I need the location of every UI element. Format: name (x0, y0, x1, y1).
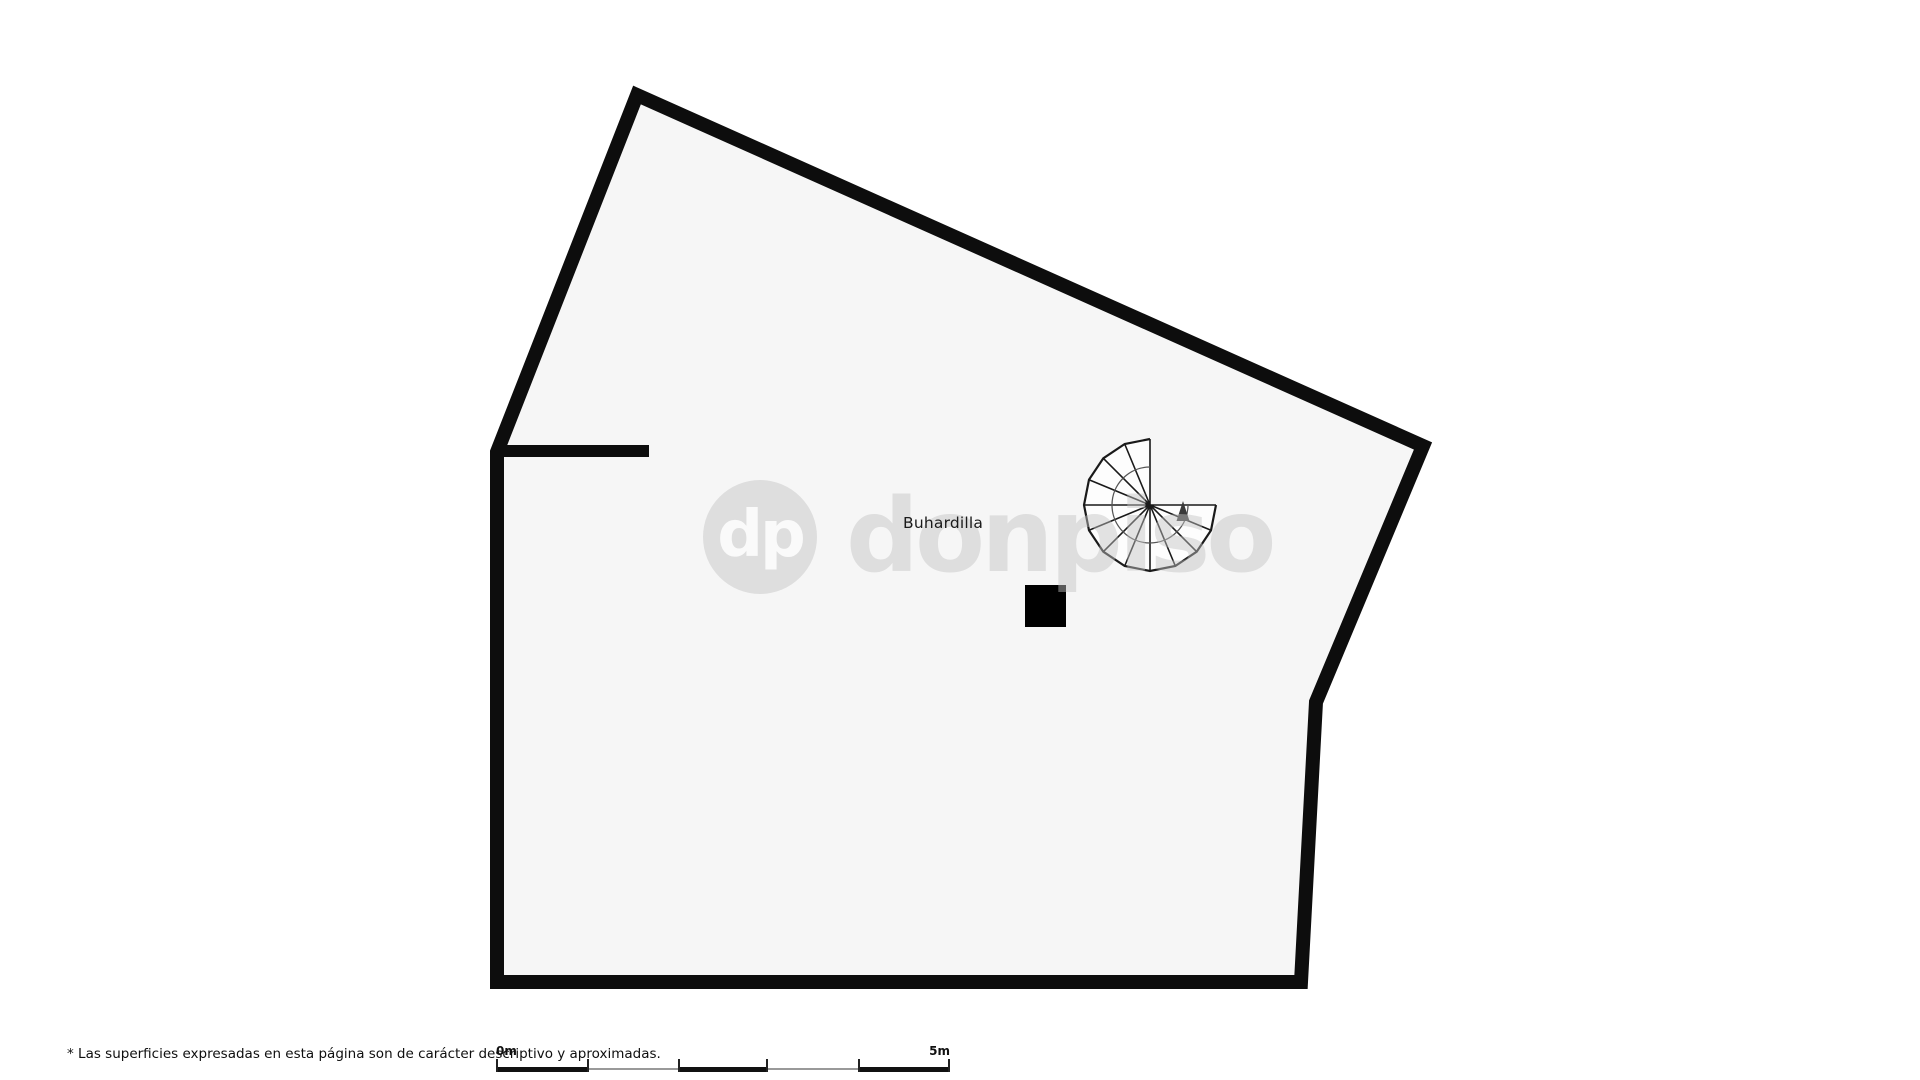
scale-tick (496, 1059, 498, 1072)
scale-segment (859, 1067, 950, 1072)
scale-label-5m: 5m (929, 1045, 950, 1057)
scale-tick (948, 1059, 950, 1072)
scale-segment (496, 1067, 588, 1072)
scale-segment (767, 1068, 859, 1070)
scale-tick (766, 1059, 768, 1072)
room-label: Buhardilla (903, 514, 983, 532)
scale-label-0m: 0m (496, 1045, 517, 1057)
scale-segment (588, 1068, 679, 1070)
scale-tick (587, 1059, 589, 1072)
floorplan-drawing (0, 0, 1920, 1080)
attic-outline (497, 95, 1423, 982)
scale-bar: 0m 5m (496, 1045, 950, 1073)
floorplan-page: dp donpiso Buhardilla * Las superficies … (0, 0, 1920, 1080)
chimney-column (1025, 585, 1066, 627)
scale-tick (858, 1059, 860, 1072)
scale-segment (679, 1067, 767, 1072)
scale-tick (678, 1059, 680, 1072)
